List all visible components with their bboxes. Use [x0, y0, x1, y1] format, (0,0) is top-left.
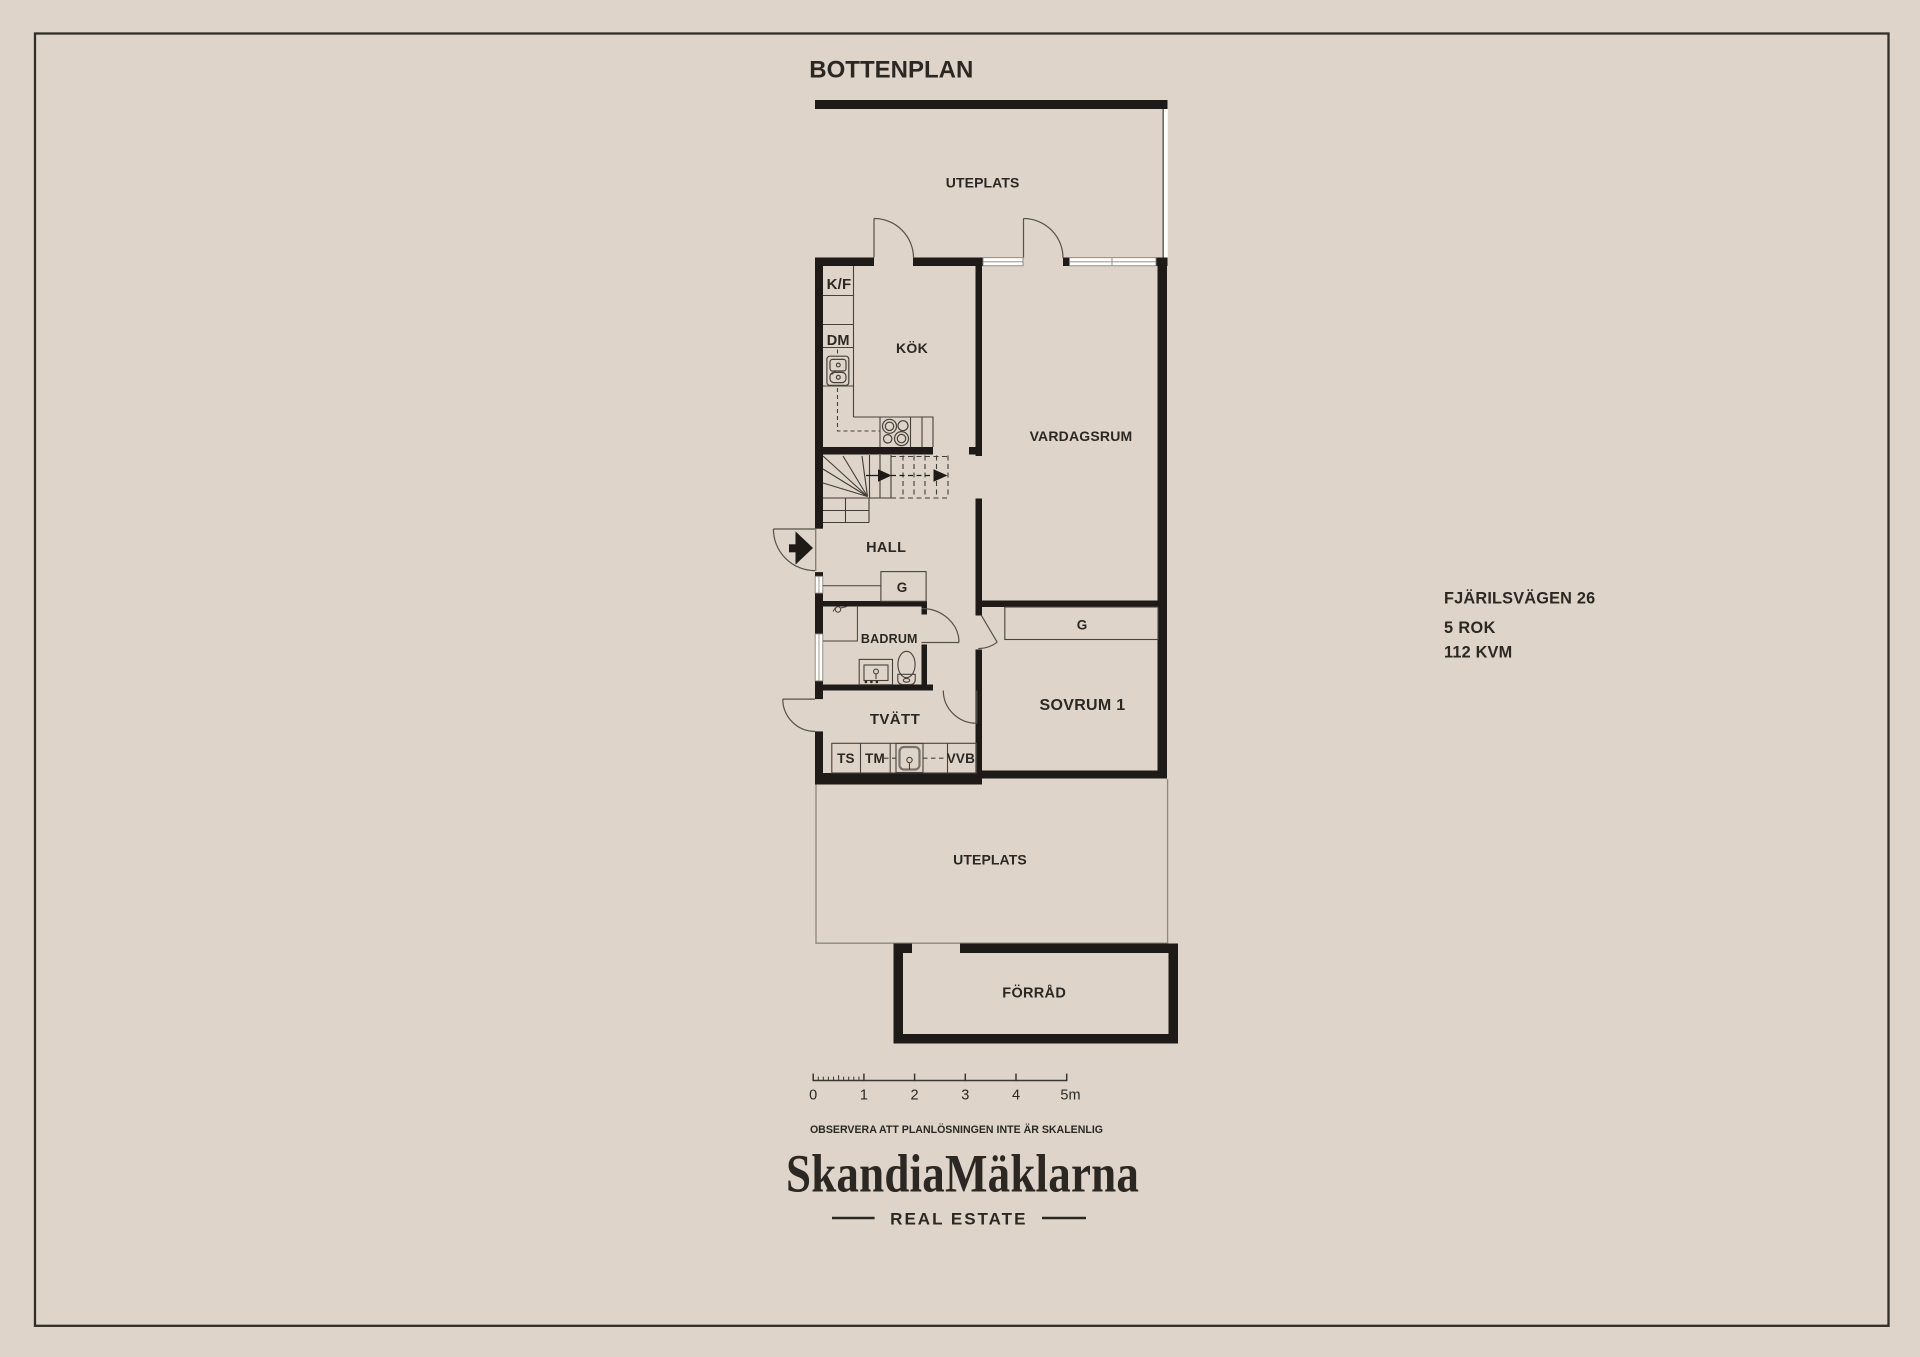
svg-text:BADRUM: BADRUM	[861, 632, 918, 646]
svg-text:K/F: K/F	[827, 276, 852, 293]
svg-text:UTEPLATS: UTEPLATS	[953, 852, 1027, 868]
svg-text:TS: TS	[837, 751, 855, 766]
svg-text:VARDAGSRUM: VARDAGSRUM	[1030, 428, 1133, 444]
svg-text:4: 4	[1012, 1088, 1020, 1104]
svg-text:REAL ESTATE: REAL ESTATE	[890, 1210, 1027, 1229]
svg-text:5m: 5m	[1060, 1088, 1080, 1104]
svg-text:BOTTENPLAN: BOTTENPLAN	[809, 57, 973, 84]
svg-text:UTEPLATS: UTEPLATS	[946, 175, 1020, 191]
svg-text:112 KVM: 112 KVM	[1444, 644, 1512, 662]
svg-text:0: 0	[809, 1088, 817, 1104]
svg-text:SOVRUM 1: SOVRUM 1	[1040, 697, 1126, 714]
svg-text:HALL: HALL	[866, 540, 906, 556]
svg-text:SkandiaMäklarna: SkandiaMäklarna	[786, 1144, 1139, 1204]
svg-text:DM: DM	[827, 333, 850, 349]
svg-text:3: 3	[961, 1088, 969, 1104]
svg-text:FÖRRÅD: FÖRRÅD	[1002, 985, 1066, 1002]
svg-text:OBSERVERA ATT PLANLÖSNINGEN IN: OBSERVERA ATT PLANLÖSNINGEN INTE ÄR SKAL…	[810, 1123, 1103, 1136]
svg-text:TVÄTT: TVÄTT	[870, 711, 920, 728]
svg-text:2: 2	[911, 1088, 919, 1104]
svg-text:G: G	[1077, 618, 1088, 633]
svg-text:VVB: VVB	[947, 751, 975, 766]
svg-text:TM: TM	[865, 751, 885, 766]
svg-text:5 ROK: 5 ROK	[1444, 619, 1496, 637]
svg-text:1: 1	[860, 1088, 868, 1104]
svg-text:G: G	[897, 580, 908, 595]
svg-text:KÖK: KÖK	[896, 340, 928, 356]
svg-text:FJÄRILSVÄGEN 26: FJÄRILSVÄGEN 26	[1444, 590, 1595, 608]
